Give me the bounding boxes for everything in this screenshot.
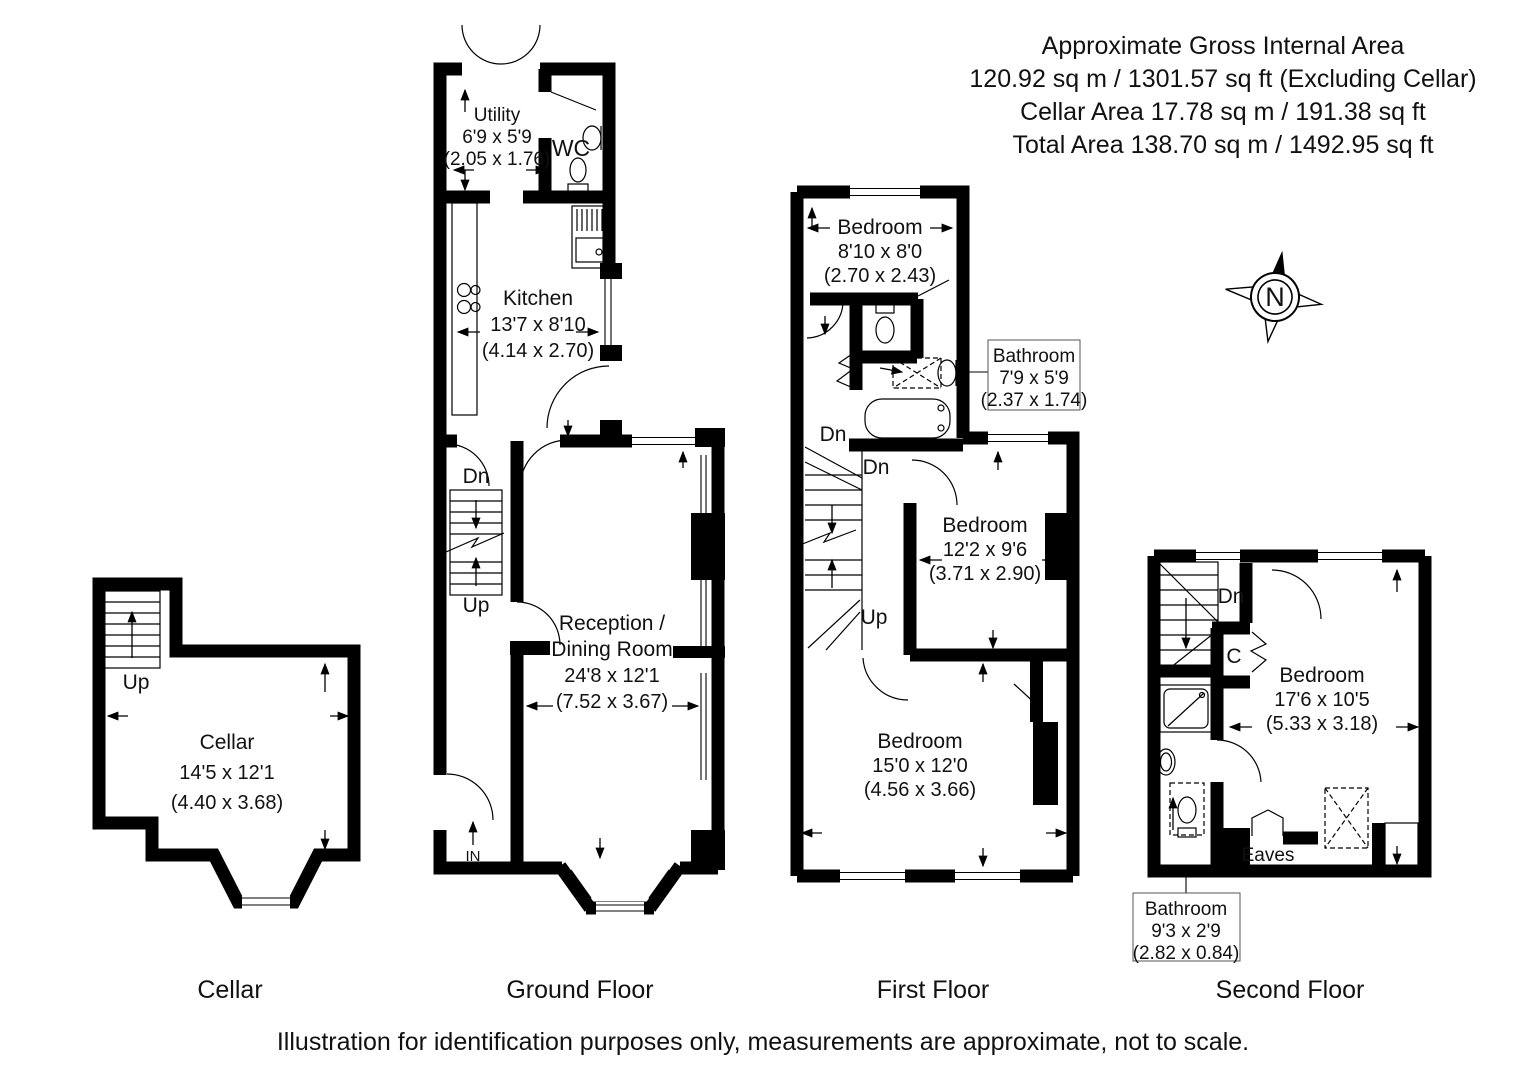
reception-imperial: 24'8 x 12'1	[564, 665, 660, 687]
first-bedroom3-name: Bedroom	[877, 730, 962, 753]
second-bathroom-callout: Bathroom 9'3 x 2'9 (2.82 x 0.84)	[1133, 871, 1240, 964]
first-stair-up-label: Up	[861, 606, 888, 629]
second-bedroom-metric: (5.33 x 3.18)	[1266, 713, 1378, 735]
area-summary-cellar: Cellar Area 17.78 sq m / 191.38 sq ft	[930, 96, 1516, 129]
ground-walls	[440, 69, 718, 908]
ground-dimension-arrows	[454, 90, 698, 858]
second-bathroom-name: Bathroom	[1145, 899, 1227, 920]
first-bathroom-name: Bathroom	[993, 346, 1075, 367]
first-bedroom2-metric: (3.71 x 2.90)	[929, 563, 1041, 585]
ground-windows	[566, 279, 711, 915]
cellar-room-name: Cellar	[200, 731, 255, 754]
utility-metric: (2.05 x 1.76)	[444, 149, 551, 170]
reception-name-line2: Dining Room	[551, 638, 672, 661]
ground-stair-dn-label: Dn	[463, 465, 490, 488]
reception-metric: (7.52 x 3.67)	[556, 691, 668, 713]
area-summary-title: Approximate Gross Internal Area	[930, 30, 1516, 63]
area-summary: Approximate Gross Internal Area 120.92 s…	[930, 30, 1516, 162]
caption-cellar: Cellar	[80, 976, 380, 1005]
wc-label: WC	[552, 135, 590, 161]
first-stair-dn-upper-label: Dn	[820, 423, 847, 446]
second-floorplan: Bathroom 9'3 x 2'9 (2.82 x 0.84) Dn C Be…	[1126, 541, 1446, 969]
first-bathroom-metric: (2.37 x 1.74)	[981, 390, 1088, 411]
first-bedroom1-metric: (2.70 x 2.43)	[824, 265, 936, 287]
first-bedroom2-imperial: 12'2 x 9'6	[943, 539, 1027, 561]
first-stair-dn-label: Dn	[863, 456, 890, 479]
utility-name: Utility	[474, 105, 521, 126]
second-stair-dn-label: Dn	[1218, 585, 1245, 608]
area-summary-gross: 120.92 sq m / 1301.57 sq ft (Excluding C…	[930, 63, 1516, 96]
compass-icon: N	[1216, 244, 1334, 354]
cellar-bay-window	[242, 895, 290, 909]
compass-north-label: N	[1265, 282, 1285, 312]
second-bathroom-metric: (2.82 x 0.84)	[1133, 943, 1240, 964]
ground-labels: Utility 6'9 x 5'9 (2.05 x 1.76) WC Kitch…	[444, 105, 673, 865]
utility-imperial: 6'9 x 5'9	[462, 127, 532, 148]
area-summary-total: Total Area 138.70 sq m / 1492.95 sq ft	[930, 129, 1516, 162]
second-closet-label: C	[1226, 645, 1241, 668]
first-bedroom3-imperial: 15'0 x 12'0	[872, 755, 968, 777]
caption-first-floor: First Floor	[783, 976, 1083, 1005]
first-bathroom-callout: Bathroom 7'9 x 5'9 (2.37 x 1.74)	[958, 340, 1087, 411]
caption-ground-floor: Ground Floor	[430, 976, 730, 1005]
kitchen-metric: (4.14 x 2.70)	[482, 340, 594, 362]
cellar-room-metric: (4.40 x 3.68)	[171, 792, 283, 814]
disclaimer-text: Illustration for identification purposes…	[0, 1028, 1526, 1057]
second-bedroom-name: Bedroom	[1279, 664, 1364, 687]
second-bathroom-imperial: 9'3 x 2'9	[1151, 921, 1221, 942]
cellar-floorplan: Up Cellar 14'5 x 12'1 (4.40 x 3.68)	[86, 568, 370, 932]
first-bedroom2-name: Bedroom	[942, 514, 1027, 537]
entrance-in-label: IN	[466, 848, 481, 865]
kitchen-imperial: 13'7 x 8'10	[490, 314, 586, 336]
ground-floorplan: Utility 6'9 x 5'9 (2.05 x 1.76) WC Kitch…	[424, 18, 734, 930]
first-bedroom1-name: Bedroom	[837, 216, 922, 239]
ground-stair-up-label: Up	[463, 594, 490, 617]
cellar-stair-up-label: Up	[123, 671, 150, 694]
cellar-room-imperial: 14'5 x 12'1	[179, 762, 275, 784]
second-eaves-label: Eaves	[1242, 845, 1295, 866]
caption-second-floor: Second Floor	[1140, 976, 1440, 1005]
first-bedroom1-imperial: 8'10 x 8'0	[838, 241, 922, 263]
reception-name-line1: Reception /	[559, 612, 665, 635]
second-bedroom-imperial: 17'6 x 10'5	[1274, 689, 1370, 711]
kitchen-name: Kitchen	[503, 287, 573, 310]
first-bedroom3-metric: (4.56 x 3.66)	[864, 779, 976, 801]
first-floorplan: Bathroom 7'9 x 5'9 (2.37 x 1.74) Bedroom…	[784, 181, 1090, 895]
first-bathroom-imperial: 7'9 x 5'9	[999, 368, 1069, 389]
